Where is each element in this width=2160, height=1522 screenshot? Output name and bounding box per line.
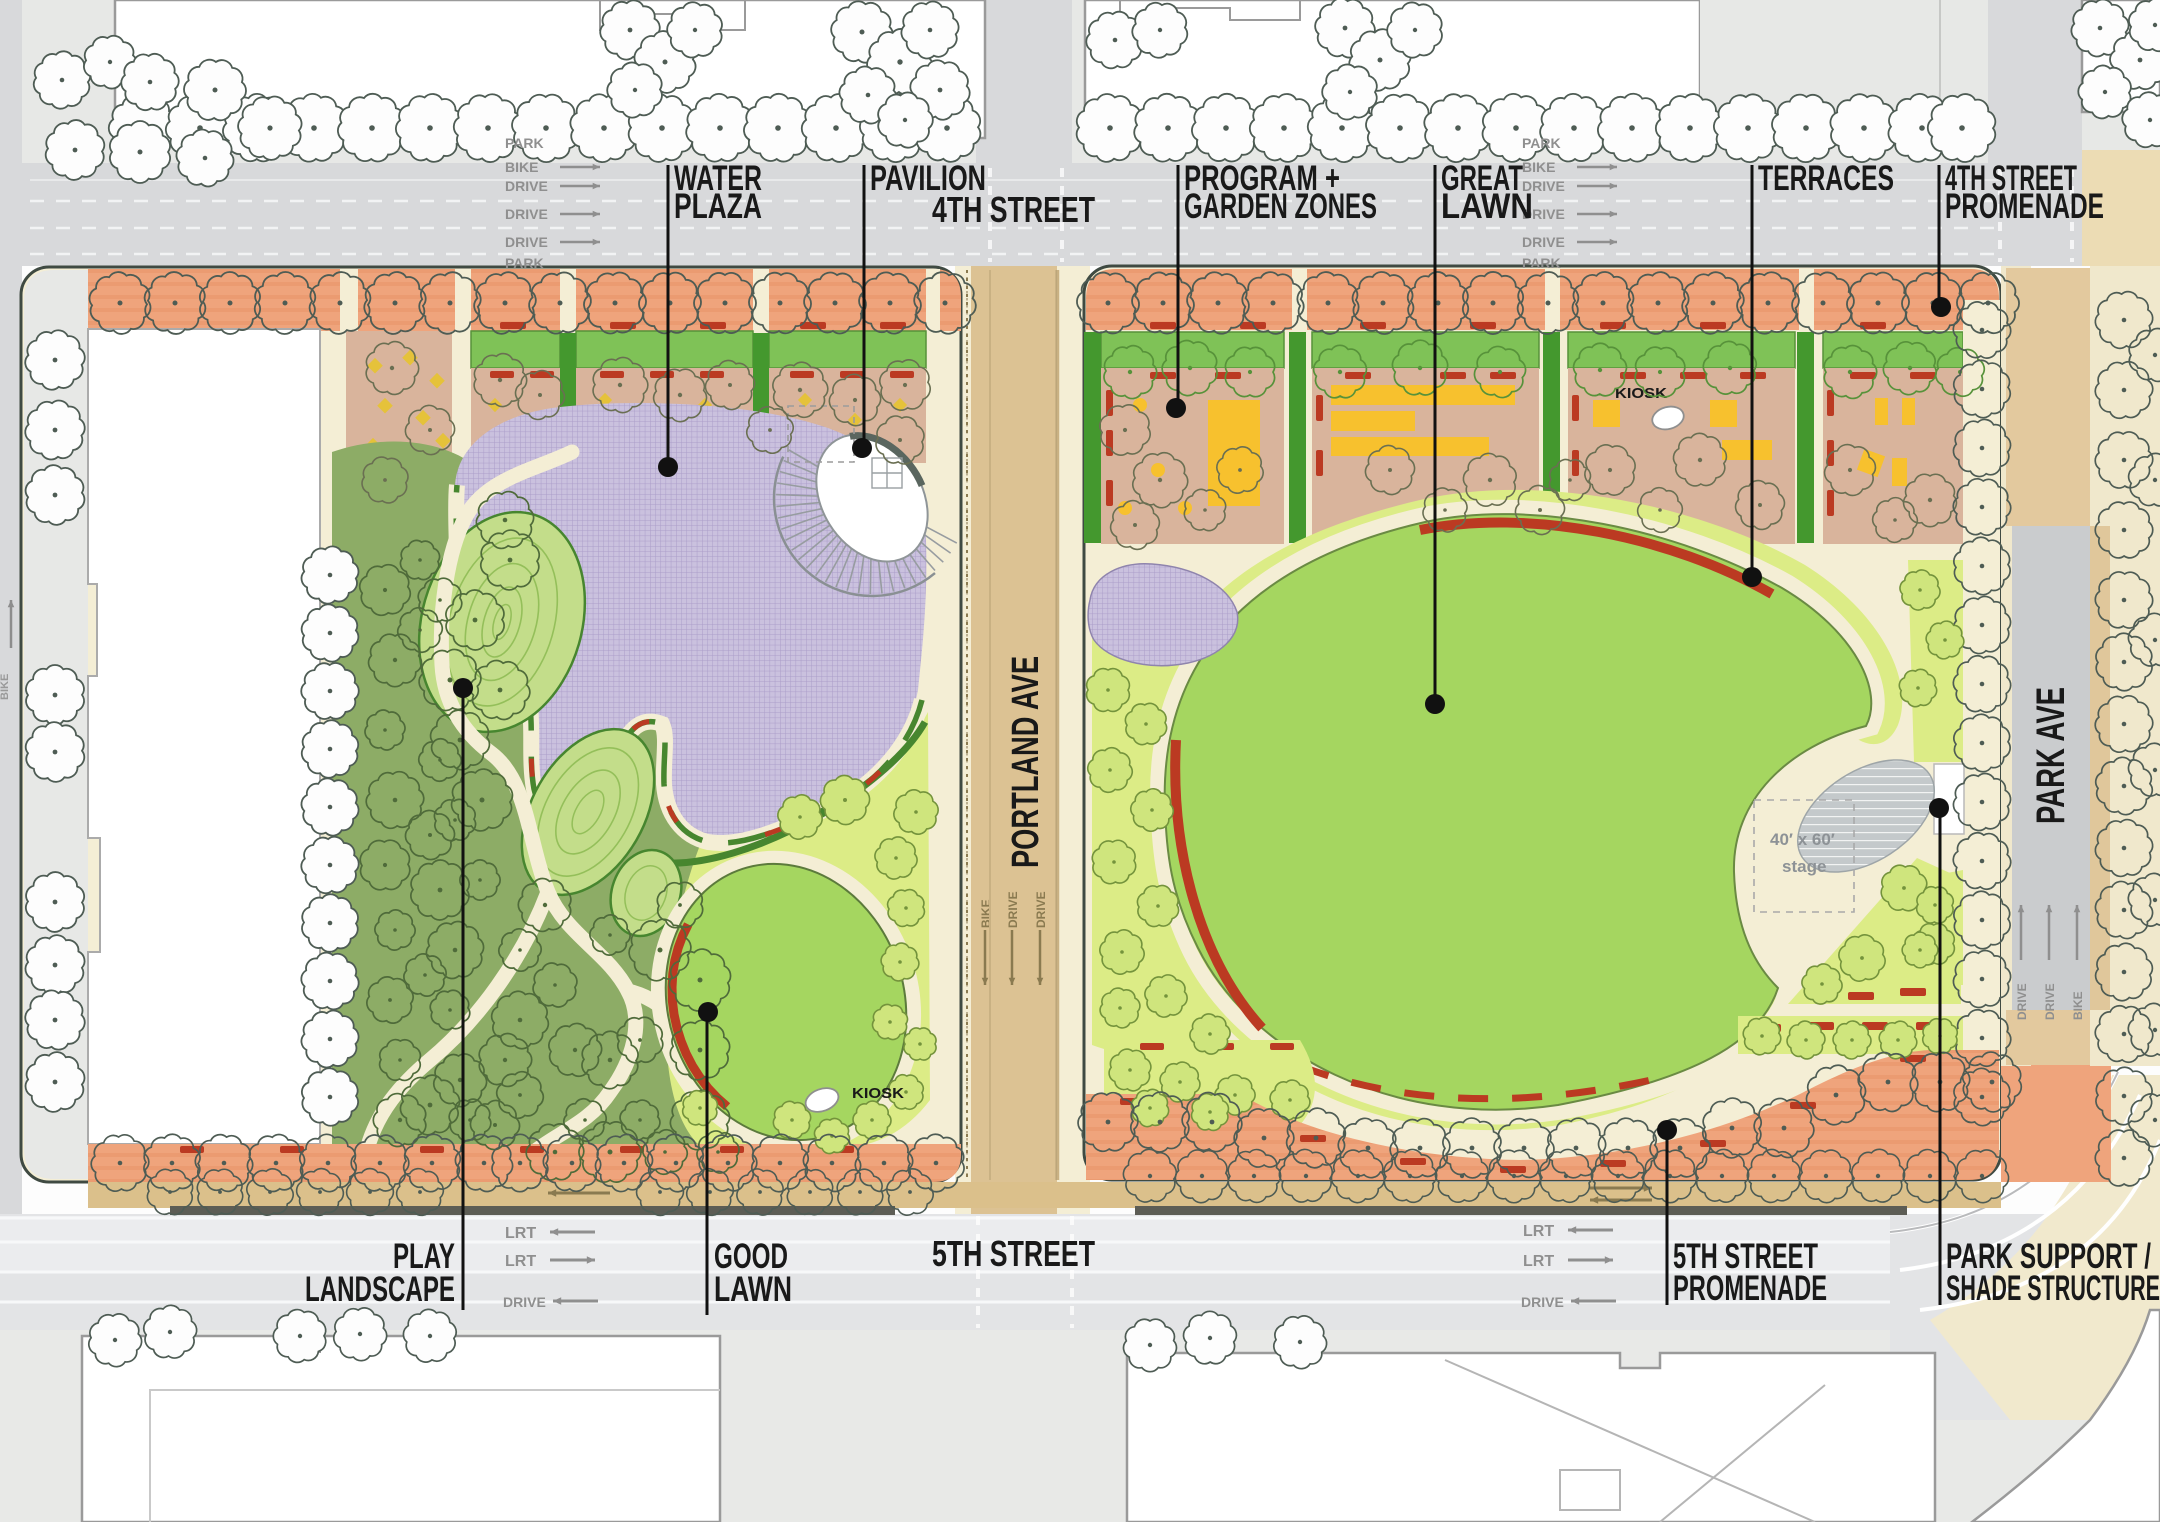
svg-text:DRIVE: DRIVE (1522, 234, 1565, 250)
svg-text:BIKE: BIKE (0, 674, 11, 700)
svg-text:PARK AVE: PARK AVE (2029, 687, 2073, 824)
svg-text:DRIVE: DRIVE (1034, 891, 1048, 928)
svg-text:DRIVE: DRIVE (505, 178, 548, 194)
svg-text:LRT: LRT (1523, 1223, 1554, 1240)
svg-text:LRT: LRT (505, 1253, 536, 1270)
svg-text:KIOSK: KIOSK (852, 1085, 904, 1102)
svg-text:DRIVE: DRIVE (505, 234, 548, 250)
svg-text:SHADE STRUCTURE: SHADE STRUCTURE (1946, 1269, 2160, 1308)
svg-text:PROMENADE: PROMENADE (1945, 187, 2104, 226)
svg-text:PORTLAND AVE: PORTLAND AVE (1005, 656, 1047, 868)
svg-text:5TH STREET: 5TH STREET (932, 1233, 1095, 1274)
svg-text:BIKE: BIKE (2071, 991, 2085, 1020)
svg-text:PARK: PARK (505, 255, 544, 271)
svg-text:LRT: LRT (505, 1225, 536, 1242)
svg-text:LRT: LRT (1523, 1253, 1554, 1270)
svg-text:BIKE: BIKE (505, 159, 538, 175)
svg-text:PARK: PARK (505, 135, 544, 151)
svg-text:TERRACES: TERRACES (1758, 159, 1894, 198)
svg-text:LAWN: LAWN (714, 1270, 792, 1309)
svg-text:DRIVE: DRIVE (2015, 983, 2029, 1020)
svg-text:PARK: PARK (1522, 255, 1561, 271)
svg-text:PROMENADE: PROMENADE (1673, 1269, 1827, 1308)
svg-text:DRIVE: DRIVE (2043, 983, 2057, 1020)
svg-text:GARDEN ZONES: GARDEN ZONES (1184, 187, 1377, 226)
svg-text:40′ x 60′: 40′ x 60′ (1770, 830, 1835, 849)
svg-text:DRIVE: DRIVE (1006, 891, 1020, 928)
svg-text:DRIVE: DRIVE (1521, 1294, 1564, 1310)
svg-text:PARK: PARK (1522, 135, 1561, 151)
svg-text:PAVILION: PAVILION (870, 159, 986, 198)
svg-text:DRIVE: DRIVE (503, 1294, 546, 1310)
svg-text:LAWN: LAWN (1441, 187, 1533, 226)
svg-text:stage: stage (1782, 857, 1826, 876)
svg-text:DRIVE: DRIVE (505, 206, 548, 222)
svg-text:PLAZA: PLAZA (674, 187, 762, 226)
svg-text:BIKE: BIKE (1522, 159, 1555, 175)
svg-text:LANDSCAPE: LANDSCAPE (305, 1270, 455, 1309)
